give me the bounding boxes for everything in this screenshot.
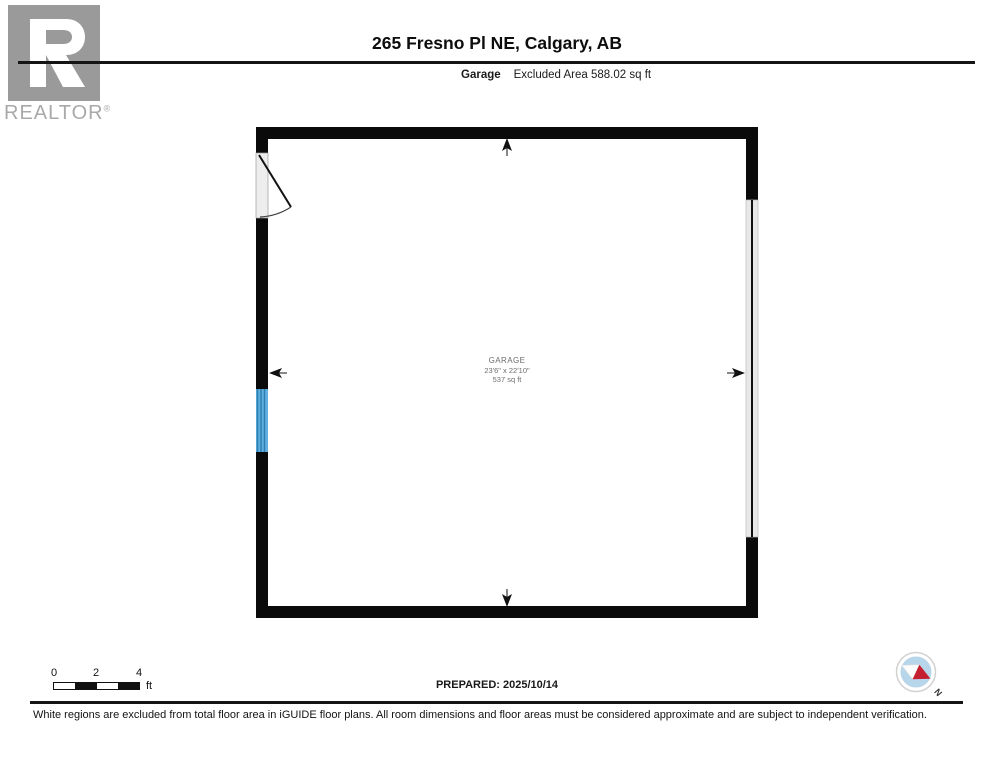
subtitle: Garage Excluded Area 588.02 sq ft bbox=[461, 69, 651, 81]
room-area: 537 sq ft bbox=[407, 375, 607, 385]
header-separator bbox=[18, 61, 975, 64]
wall-right-lower bbox=[746, 537, 758, 606]
subtitle-room-type: Garage bbox=[461, 69, 501, 81]
realtor-brand-text: REALTOR bbox=[4, 102, 104, 124]
realtor-wordmark: REALTOR® bbox=[4, 102, 111, 125]
garage-door bbox=[746, 200, 758, 537]
scale-tick-0: 0 bbox=[47, 667, 61, 679]
room-name: GARAGE bbox=[407, 356, 607, 366]
compass-icon: N bbox=[891, 648, 955, 704]
footer-separator bbox=[30, 701, 963, 704]
dimension-arrow-left-icon bbox=[269, 368, 282, 378]
door-leaf bbox=[259, 155, 291, 207]
door-swing-arc bbox=[260, 207, 291, 217]
disclaimer-text: White regions are excluded from total fl… bbox=[33, 709, 978, 721]
compass-north-label: N bbox=[932, 687, 944, 698]
wall-left-lower bbox=[256, 452, 268, 606]
window bbox=[256, 389, 268, 452]
wall-left-upper bbox=[256, 139, 268, 153]
dimension-arrow-up-icon bbox=[502, 138, 512, 151]
wall-bottom bbox=[256, 606, 758, 618]
wall-top bbox=[256, 127, 758, 139]
room-label: GARAGE 23'6" x 22'10" 537 sq ft bbox=[407, 356, 607, 385]
prepared-date: PREPARED: 2025/10/14 bbox=[0, 679, 994, 691]
room-dimensions: 23'6" x 22'10" bbox=[407, 366, 607, 376]
wall-left-mid bbox=[256, 218, 268, 389]
registered-mark: ® bbox=[104, 103, 112, 113]
scale-tick-4: 4 bbox=[132, 667, 146, 679]
wall-right-upper bbox=[746, 139, 758, 200]
scale-tick-2: 2 bbox=[89, 667, 103, 679]
dimension-arrow-right-icon bbox=[732, 368, 745, 378]
dimension-arrow-down-icon bbox=[502, 594, 512, 607]
subtitle-excluded-area: Excluded Area 588.02 sq ft bbox=[514, 69, 651, 81]
door-opening bbox=[256, 153, 268, 218]
page-title: 265 Fresno Pl NE, Calgary, AB bbox=[0, 33, 994, 54]
